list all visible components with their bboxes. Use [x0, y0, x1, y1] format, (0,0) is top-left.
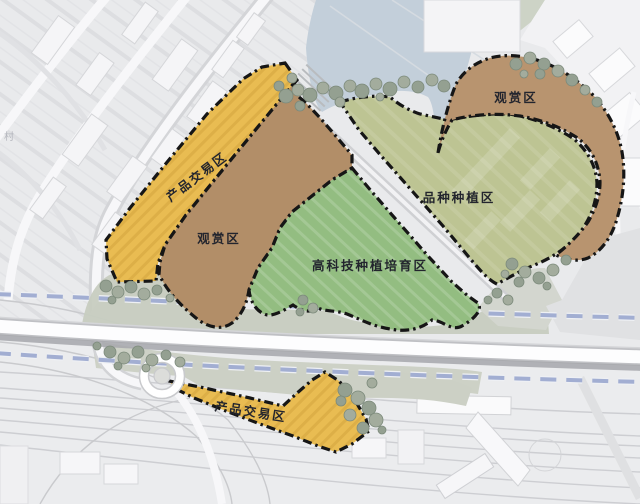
- label-ornamental-west: 观赏区: [197, 231, 241, 246]
- site-plan-map: 村: [0, 0, 640, 504]
- label-ornamental-northeast: 观赏区: [494, 90, 538, 105]
- village-label: 村: [4, 130, 15, 143]
- site-plan-svg: 村: [0, 0, 640, 504]
- label-hightech-cultivation: 高科技种植培育区: [312, 258, 428, 273]
- label-variety-planting: 品种种植区: [423, 190, 496, 205]
